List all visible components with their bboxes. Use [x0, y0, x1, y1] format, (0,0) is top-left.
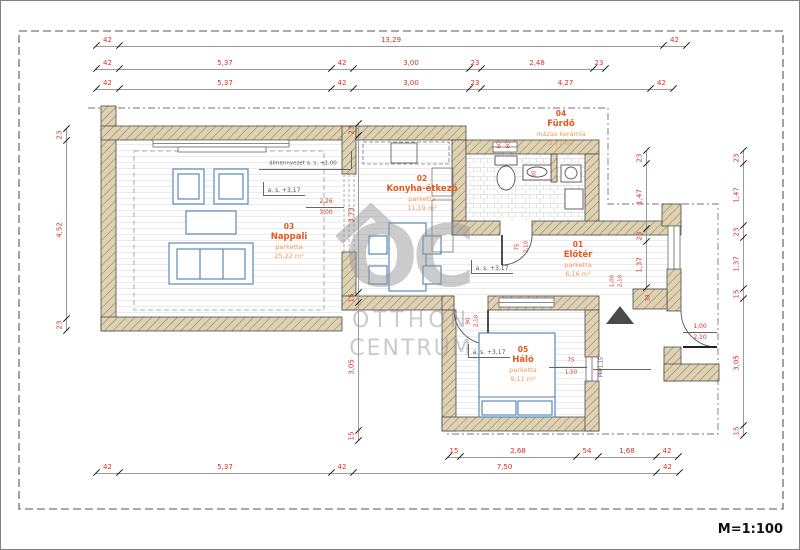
leader-line	[259, 169, 351, 170]
dimension-line	[358, 124, 359, 441]
dimension-label: 15	[450, 448, 459, 455]
annotation-text: a. s. +3,17	[268, 188, 301, 194]
leader-line	[549, 367, 587, 368]
dimension-line	[96, 89, 673, 90]
dimension-label: 2,48	[529, 60, 545, 67]
annotation-text: 60	[506, 142, 512, 149]
room-material: mázas kerámia	[536, 131, 585, 138]
dimension-label: 42	[657, 80, 666, 87]
dimension-label: 42	[103, 60, 112, 67]
dimension-tick	[739, 432, 746, 439]
dimension-label: 23	[57, 131, 64, 140]
dimension-label: 42	[103, 464, 112, 471]
dimension-line	[743, 151, 744, 436]
room-area: 3,77 m²	[536, 140, 585, 147]
room-label-fürdő: 04Fürdőmázas kerámia3,77 m²	[536, 110, 585, 146]
room-label-előtér: 01Előtérparketta6,16 m²	[564, 241, 593, 277]
dimension-tick	[642, 284, 649, 291]
dimension-label: 23	[57, 321, 64, 330]
dimension-tick	[354, 437, 361, 444]
leader-line	[471, 273, 513, 274]
annotation-text: 60	[497, 142, 503, 149]
dimension-label: 1,47	[734, 187, 741, 203]
annotation-text: a. s. +3,17	[473, 350, 506, 356]
annotation-text: 1,00	[693, 324, 706, 330]
dimension-label: 1,68	[619, 448, 635, 455]
room-material: parketta	[271, 244, 308, 251]
dimension-label: 15	[734, 290, 741, 299]
room-number: 02	[387, 175, 458, 183]
leader-line	[468, 357, 510, 358]
leader-line	[683, 332, 717, 333]
dimension-label: 42	[670, 37, 679, 44]
dimension-label: 15	[349, 294, 356, 303]
dimension-label: 15	[734, 427, 741, 436]
dimension-label: 42	[663, 464, 672, 471]
annotation-text: 75	[515, 244, 521, 251]
dimension-label: 54	[583, 448, 592, 455]
dimension-line	[66, 129, 67, 331]
dimension-label: 1,47	[637, 189, 644, 205]
dimension-tick	[682, 42, 689, 49]
room-name: Előtér	[564, 251, 593, 260]
room-material: parketta	[564, 262, 593, 269]
room-name: Nappali	[271, 233, 308, 242]
dimension-label: 3,05	[349, 359, 356, 375]
room-material: parketta	[387, 196, 458, 203]
annotation-text: 3,00	[319, 210, 332, 216]
dimension-label: 23	[734, 228, 741, 237]
room-name: Háló	[509, 356, 536, 365]
room-area: 11,19 m²	[387, 205, 458, 212]
leader-line	[468, 344, 469, 357]
dimension-label: 3,00	[403, 80, 419, 87]
annotation-text: PM/1,15	[600, 357, 605, 377]
room-label-nappali: 03Nappaliparketta25,22 m²	[271, 223, 308, 259]
annotation-text: 75	[568, 358, 575, 364]
dimension-tick	[62, 327, 69, 334]
dimension-tick	[674, 453, 681, 460]
room-label-konyha-étkező: 02Konyha-étkezőparketta11,19 m²	[387, 175, 458, 211]
room-number: 03	[271, 223, 308, 231]
dimension-label: 42	[338, 60, 347, 67]
room-material: parketta	[509, 367, 536, 374]
dimension-label: 3,00	[403, 60, 419, 67]
dimension-label: 4,27	[558, 80, 574, 87]
dimension-label: 42	[338, 80, 347, 87]
leader-line	[263, 195, 305, 196]
annotation-text: 80	[532, 171, 538, 178]
leader-line	[263, 182, 264, 195]
dimension-label: 15	[349, 432, 356, 441]
dimension-label: 23	[595, 60, 604, 67]
leader-line	[593, 369, 651, 370]
dimension-label: 3,05	[734, 355, 741, 371]
leader-line	[306, 207, 344, 208]
labels-layer: 4213,2942425,37423,00232,4823425,37423,0…	[1, 1, 800, 550]
dimension-label: 4,52	[57, 222, 64, 238]
leader-line	[351, 151, 352, 169]
dimension-label: 23	[471, 60, 480, 67]
room-area: 25,22 m²	[271, 253, 308, 260]
annotation-text: 2,10	[618, 275, 624, 287]
dimension-label: 23	[349, 126, 356, 135]
scale-label: M=1:100	[718, 522, 783, 537]
annotation-text: 38	[646, 295, 652, 302]
annotation-text: a. s. +3,17	[476, 266, 509, 272]
dimension-label: 5,37	[217, 464, 233, 471]
dimension-label: 42	[103, 80, 112, 87]
annotation-text: 2,26	[319, 199, 332, 205]
dimension-line	[96, 46, 686, 47]
annotation-text: 1,00	[610, 275, 616, 287]
dimension-label: 1,37	[734, 256, 741, 272]
annotation-text: 2,10	[474, 315, 480, 327]
annotation-text: 2,10	[693, 335, 706, 341]
dimension-label: 3,73	[349, 207, 356, 223]
room-area: 9,11 m²	[509, 376, 536, 383]
dimension-label: 5,37	[217, 80, 233, 87]
floorplan-canvas: OC OTTHON CENTRUM 4213,2942425,37423,002…	[0, 0, 800, 550]
room-number: 05	[509, 346, 536, 354]
dimension-label: 2,68	[510, 448, 526, 455]
dimension-line	[448, 457, 678, 458]
annotation-text: 90	[466, 318, 472, 325]
dimension-tick	[669, 85, 676, 92]
room-area: 6,16 m²	[564, 271, 593, 278]
dimension-label: 1,37	[637, 257, 644, 273]
dimension-label: 23	[637, 153, 644, 162]
room-name: Konyha-étkező	[387, 185, 458, 194]
room-number: 01	[564, 241, 593, 249]
dimension-label: 42	[338, 464, 347, 471]
dimension-line	[646, 151, 647, 288]
annotation-text: 1,50	[565, 370, 577, 376]
dimension-label: 42	[103, 37, 112, 44]
room-label-háló: 05Hálóparketta9,11 m²	[509, 346, 536, 382]
room-name: Fürdő	[536, 120, 585, 129]
annotation-text: álmennyezet a. s. +1,00	[269, 161, 337, 167]
dimension-label: 7,50	[497, 464, 513, 471]
leader-line	[471, 260, 472, 273]
annotation-text: 2,10	[524, 241, 530, 253]
dimension-label: 23	[734, 153, 741, 162]
dimension-tick	[675, 469, 682, 476]
dimension-label: 23	[637, 231, 644, 240]
dimension-label: 23	[471, 80, 480, 87]
dimension-line	[96, 473, 679, 474]
dimension-label: 42	[663, 448, 672, 455]
room-number: 04	[536, 110, 585, 118]
dimension-label: 5,37	[217, 60, 233, 67]
dimension-label: 13,29	[381, 37, 401, 44]
